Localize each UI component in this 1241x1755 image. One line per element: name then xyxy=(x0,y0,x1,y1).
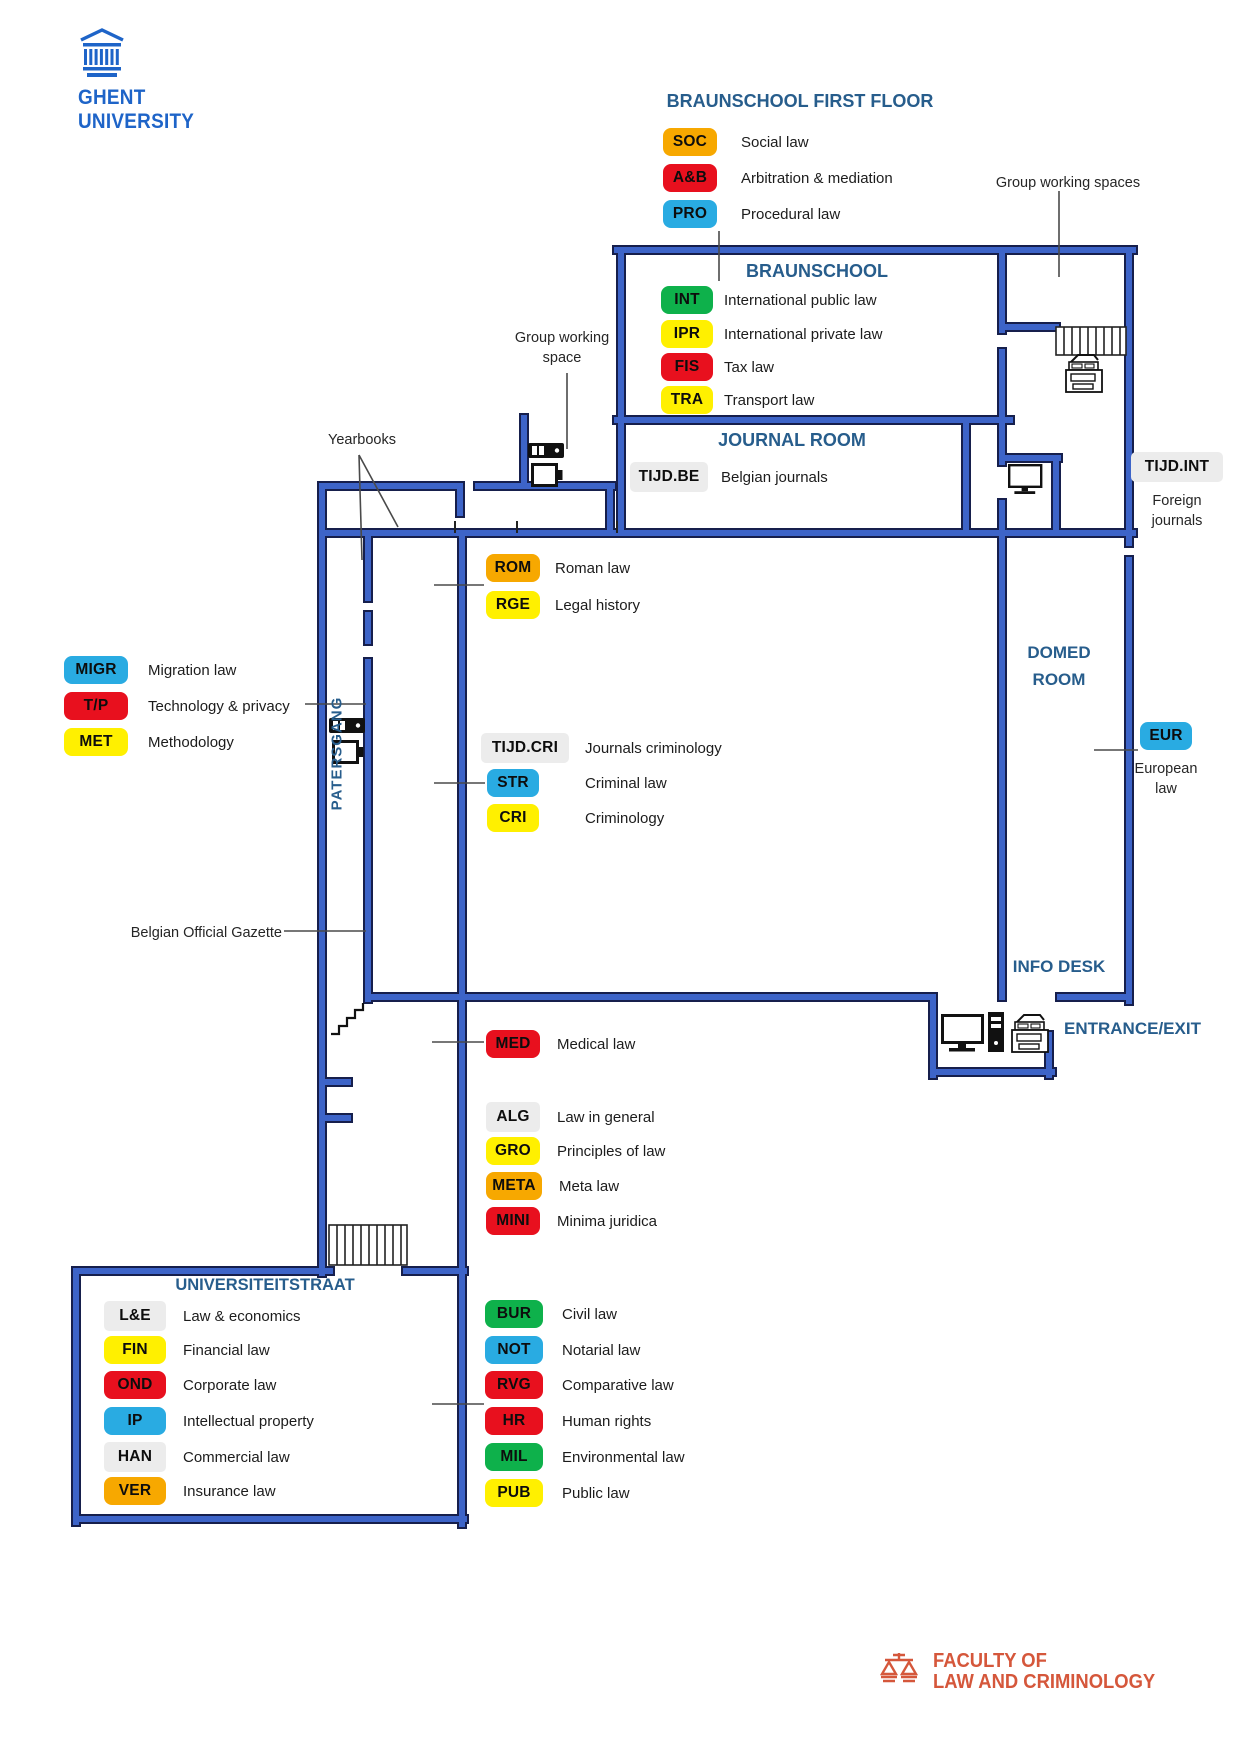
tag-label: Criminal law xyxy=(585,775,667,792)
tag-met: MET xyxy=(64,728,128,756)
ghent-logo-line2: UNIVERSITY xyxy=(78,109,194,133)
tag-str: STR xyxy=(487,769,539,797)
tag-alg: ALG xyxy=(486,1102,540,1132)
annotation-foreign-journals: Foreign journals xyxy=(1126,491,1228,531)
tag-label: Civil law xyxy=(562,1306,617,1323)
tag-label: Arbitration & mediation xyxy=(741,170,893,187)
tag-hr: HR xyxy=(485,1407,543,1435)
ghent-logo-line1: GHENT xyxy=(78,85,194,109)
legend-row: MET Methodology xyxy=(64,728,234,756)
tag-soc: SOC xyxy=(663,128,717,156)
tag-label: Comparative law xyxy=(562,1377,674,1394)
faculty-logo-line1: FACULTY OF xyxy=(933,1651,1155,1672)
scales-icon xyxy=(876,1650,922,1694)
tag-rom: ROM xyxy=(486,554,540,582)
annotation-line2: law xyxy=(1116,779,1216,799)
tag-label: Journals criminology xyxy=(585,740,722,757)
tag-label: Criminology xyxy=(585,810,664,827)
title-journal-room: JOURNAL ROOM xyxy=(612,430,972,451)
legend-row: T/P Technology & privacy xyxy=(64,692,290,720)
legend-row: ROM Roman law xyxy=(486,554,630,582)
copier-icon xyxy=(1066,355,1102,392)
annotation-line1: Foreign xyxy=(1126,491,1228,511)
walls xyxy=(76,250,1133,1524)
tag-ver: VER xyxy=(104,1477,166,1505)
printer-icon xyxy=(528,443,564,458)
tag-not: NOT xyxy=(485,1336,543,1364)
tag-tijd-int: TIJD.INT xyxy=(1131,452,1223,482)
title-patersgang: PATERSGANG xyxy=(329,694,346,814)
tag-eur: EUR xyxy=(1140,722,1192,750)
tag-label: Insurance law xyxy=(183,1483,276,1500)
tag-migr: MIGR xyxy=(64,656,128,684)
title-domed-room-line1: DOMED xyxy=(1004,643,1114,663)
tag-label: Meta law xyxy=(559,1178,619,1195)
annotation-yearbooks: Yearbooks xyxy=(300,430,424,450)
tag-fin: FIN xyxy=(104,1336,166,1364)
stairs-lower xyxy=(329,1225,407,1265)
legend-row: MINI Minima juridica xyxy=(486,1207,657,1235)
tag-pub: PUB xyxy=(485,1479,543,1507)
faculty-logo: FACULTY OF LAW AND CRIMINOLOGY xyxy=(876,1650,1174,1694)
tag-mini: MINI xyxy=(486,1207,540,1235)
tag-label: International private law xyxy=(724,326,882,343)
legend-row: FIN Financial law xyxy=(104,1336,270,1364)
monitor-icon xyxy=(943,1016,983,1052)
title-domed-room-line2: ROOM xyxy=(1004,670,1114,690)
tag-tijd-cri: TIJD.CRI xyxy=(481,733,569,763)
legend-row: GRO Principles of law xyxy=(486,1137,665,1165)
tag-ond: OND xyxy=(104,1371,166,1399)
tag-ipr: IPR xyxy=(661,320,713,348)
stairs-icon xyxy=(331,1003,363,1034)
tag-label: Technology & privacy xyxy=(148,698,290,715)
tag-label: Migration law xyxy=(148,662,236,679)
legend-row: OND Corporate law xyxy=(104,1371,276,1399)
legend-row: IPR International private law xyxy=(661,320,882,348)
title-info-desk: INFO DESK xyxy=(1002,957,1116,977)
tag-label: Environmental law xyxy=(562,1449,685,1466)
tag-ab: A&B xyxy=(663,164,717,192)
legend-row: TRA Transport law xyxy=(661,386,814,414)
tag-bur: BUR xyxy=(485,1300,543,1328)
tag-label: Medical law xyxy=(557,1036,635,1053)
tag-label: Public law xyxy=(562,1485,630,1502)
ghent-temple-icon xyxy=(78,28,126,80)
title-universiteitstraat: UNIVERSITEITSTRAAT xyxy=(85,1276,445,1295)
tag-label: Methodology xyxy=(148,734,234,751)
pc-tower-icon xyxy=(988,1012,1004,1052)
tag-tijd-be: TIJD.BE xyxy=(630,462,708,492)
tag-rvg: RVG xyxy=(485,1371,543,1399)
stairs-upper xyxy=(1056,327,1126,355)
tag-pro: PRO xyxy=(663,200,717,228)
tag-label: Financial law xyxy=(183,1342,270,1359)
tag-label: Notarial law xyxy=(562,1342,640,1359)
tag-label: Tax law xyxy=(724,359,774,376)
annotation-line1: European xyxy=(1116,759,1216,779)
tag-label: International public law xyxy=(724,292,877,309)
tag-tp: T/P xyxy=(64,692,128,720)
legend-row: RVG Comparative law xyxy=(485,1371,674,1399)
tag-label: Legal history xyxy=(555,597,640,614)
title-braunschool: BRAUNSCHOOL xyxy=(617,261,1017,282)
tag-label: Belgian journals xyxy=(721,469,828,486)
tag-gro: GRO xyxy=(486,1137,540,1165)
legend-row: NOT Notarial law xyxy=(485,1336,640,1364)
monitor-icon xyxy=(1009,465,1041,494)
tag-label: Principles of law xyxy=(557,1143,665,1160)
legend-row: PUB Public law xyxy=(485,1479,630,1507)
tag-le: L&E xyxy=(104,1301,166,1331)
legend-row: A&B Arbitration & mediation xyxy=(663,164,893,192)
legend-row: BUR Civil law xyxy=(485,1300,617,1328)
legend-row: MIGR Migration law xyxy=(64,656,236,684)
legend-row: L&E Law & economics xyxy=(104,1301,301,1331)
legend-row: MED Medical law xyxy=(486,1030,635,1058)
tag-label: Roman law xyxy=(555,560,630,577)
tag-han: HAN xyxy=(104,1442,166,1472)
legend-row: STR Criminal law xyxy=(487,769,667,797)
tag-meta: META xyxy=(486,1172,542,1200)
legend-row: HR Human rights xyxy=(485,1407,651,1435)
legend-row: INT International public law xyxy=(661,286,877,314)
tag-label: Procedural law xyxy=(741,206,840,223)
annotation-group-working-space: Group working space xyxy=(480,328,644,368)
projector-icon xyxy=(533,465,563,486)
tag-label: Law in general xyxy=(557,1109,655,1126)
tag-label: Law & economics xyxy=(183,1308,301,1325)
legend-row: RGE Legal history xyxy=(486,591,640,619)
tag-tra: TRA xyxy=(661,386,713,414)
tag-label: Social law xyxy=(741,134,809,151)
legend-row: PRO Procedural law xyxy=(663,200,840,228)
legend-row: EUR xyxy=(1140,722,1192,750)
tag-label: Human rights xyxy=(562,1413,651,1430)
tag-rge: RGE xyxy=(486,591,540,619)
legend-row: CRI Criminology xyxy=(487,804,664,832)
legend-row: MIL Environmental law xyxy=(485,1443,685,1471)
legend-row: FIS Tax law xyxy=(661,353,774,381)
annotation-line2: space xyxy=(480,348,644,368)
legend-row: IP Intellectual property xyxy=(104,1407,314,1435)
tag-ip: IP xyxy=(104,1407,166,1435)
legend-row: SOC Social law xyxy=(663,128,809,156)
tag-mil: MIL xyxy=(485,1443,543,1471)
legend-row: META Meta law xyxy=(486,1172,619,1200)
copier-icon xyxy=(1012,1015,1048,1052)
tag-label: Intellectual property xyxy=(183,1413,314,1430)
annotation-group-working-spaces: Group working spaces xyxy=(960,173,1176,193)
tag-int: INT xyxy=(661,286,713,314)
title-entrance-exit: ENTRANCE/EXIT xyxy=(1064,1019,1201,1039)
tag-cri: CRI xyxy=(487,804,539,832)
tag-label: Corporate law xyxy=(183,1377,276,1394)
annotation-line1: Group working xyxy=(480,328,644,348)
ghent-university-logo: GHENT UNIVERSITY xyxy=(78,28,210,133)
tag-med: MED xyxy=(486,1030,540,1058)
legend-row: TIJD.INT xyxy=(1131,452,1223,482)
title-braunschool-first-floor: BRAUNSCHOOL FIRST FLOOR xyxy=(580,91,1020,112)
legend-row: TIJD.BE Belgian journals xyxy=(630,462,828,492)
tag-label: Minima juridica xyxy=(557,1213,657,1230)
annotation-line2: journals xyxy=(1126,511,1228,531)
faculty-logo-line2: LAW AND CRIMINOLOGY xyxy=(933,1672,1155,1693)
annotation-european-law: European law xyxy=(1116,759,1216,799)
tag-label: Transport law xyxy=(724,392,814,409)
legend-row: VER Insurance law xyxy=(104,1477,276,1505)
tag-fis: FIS xyxy=(661,353,713,381)
legend-row: ALG Law in general xyxy=(486,1102,655,1132)
tag-label: Commercial law xyxy=(183,1449,290,1466)
legend-row: TIJD.CRI Journals criminology xyxy=(481,733,722,763)
annotation-belgian-official-gazette: Belgian Official Gazette xyxy=(100,923,282,943)
legend-row: HAN Commercial law xyxy=(104,1442,290,1472)
